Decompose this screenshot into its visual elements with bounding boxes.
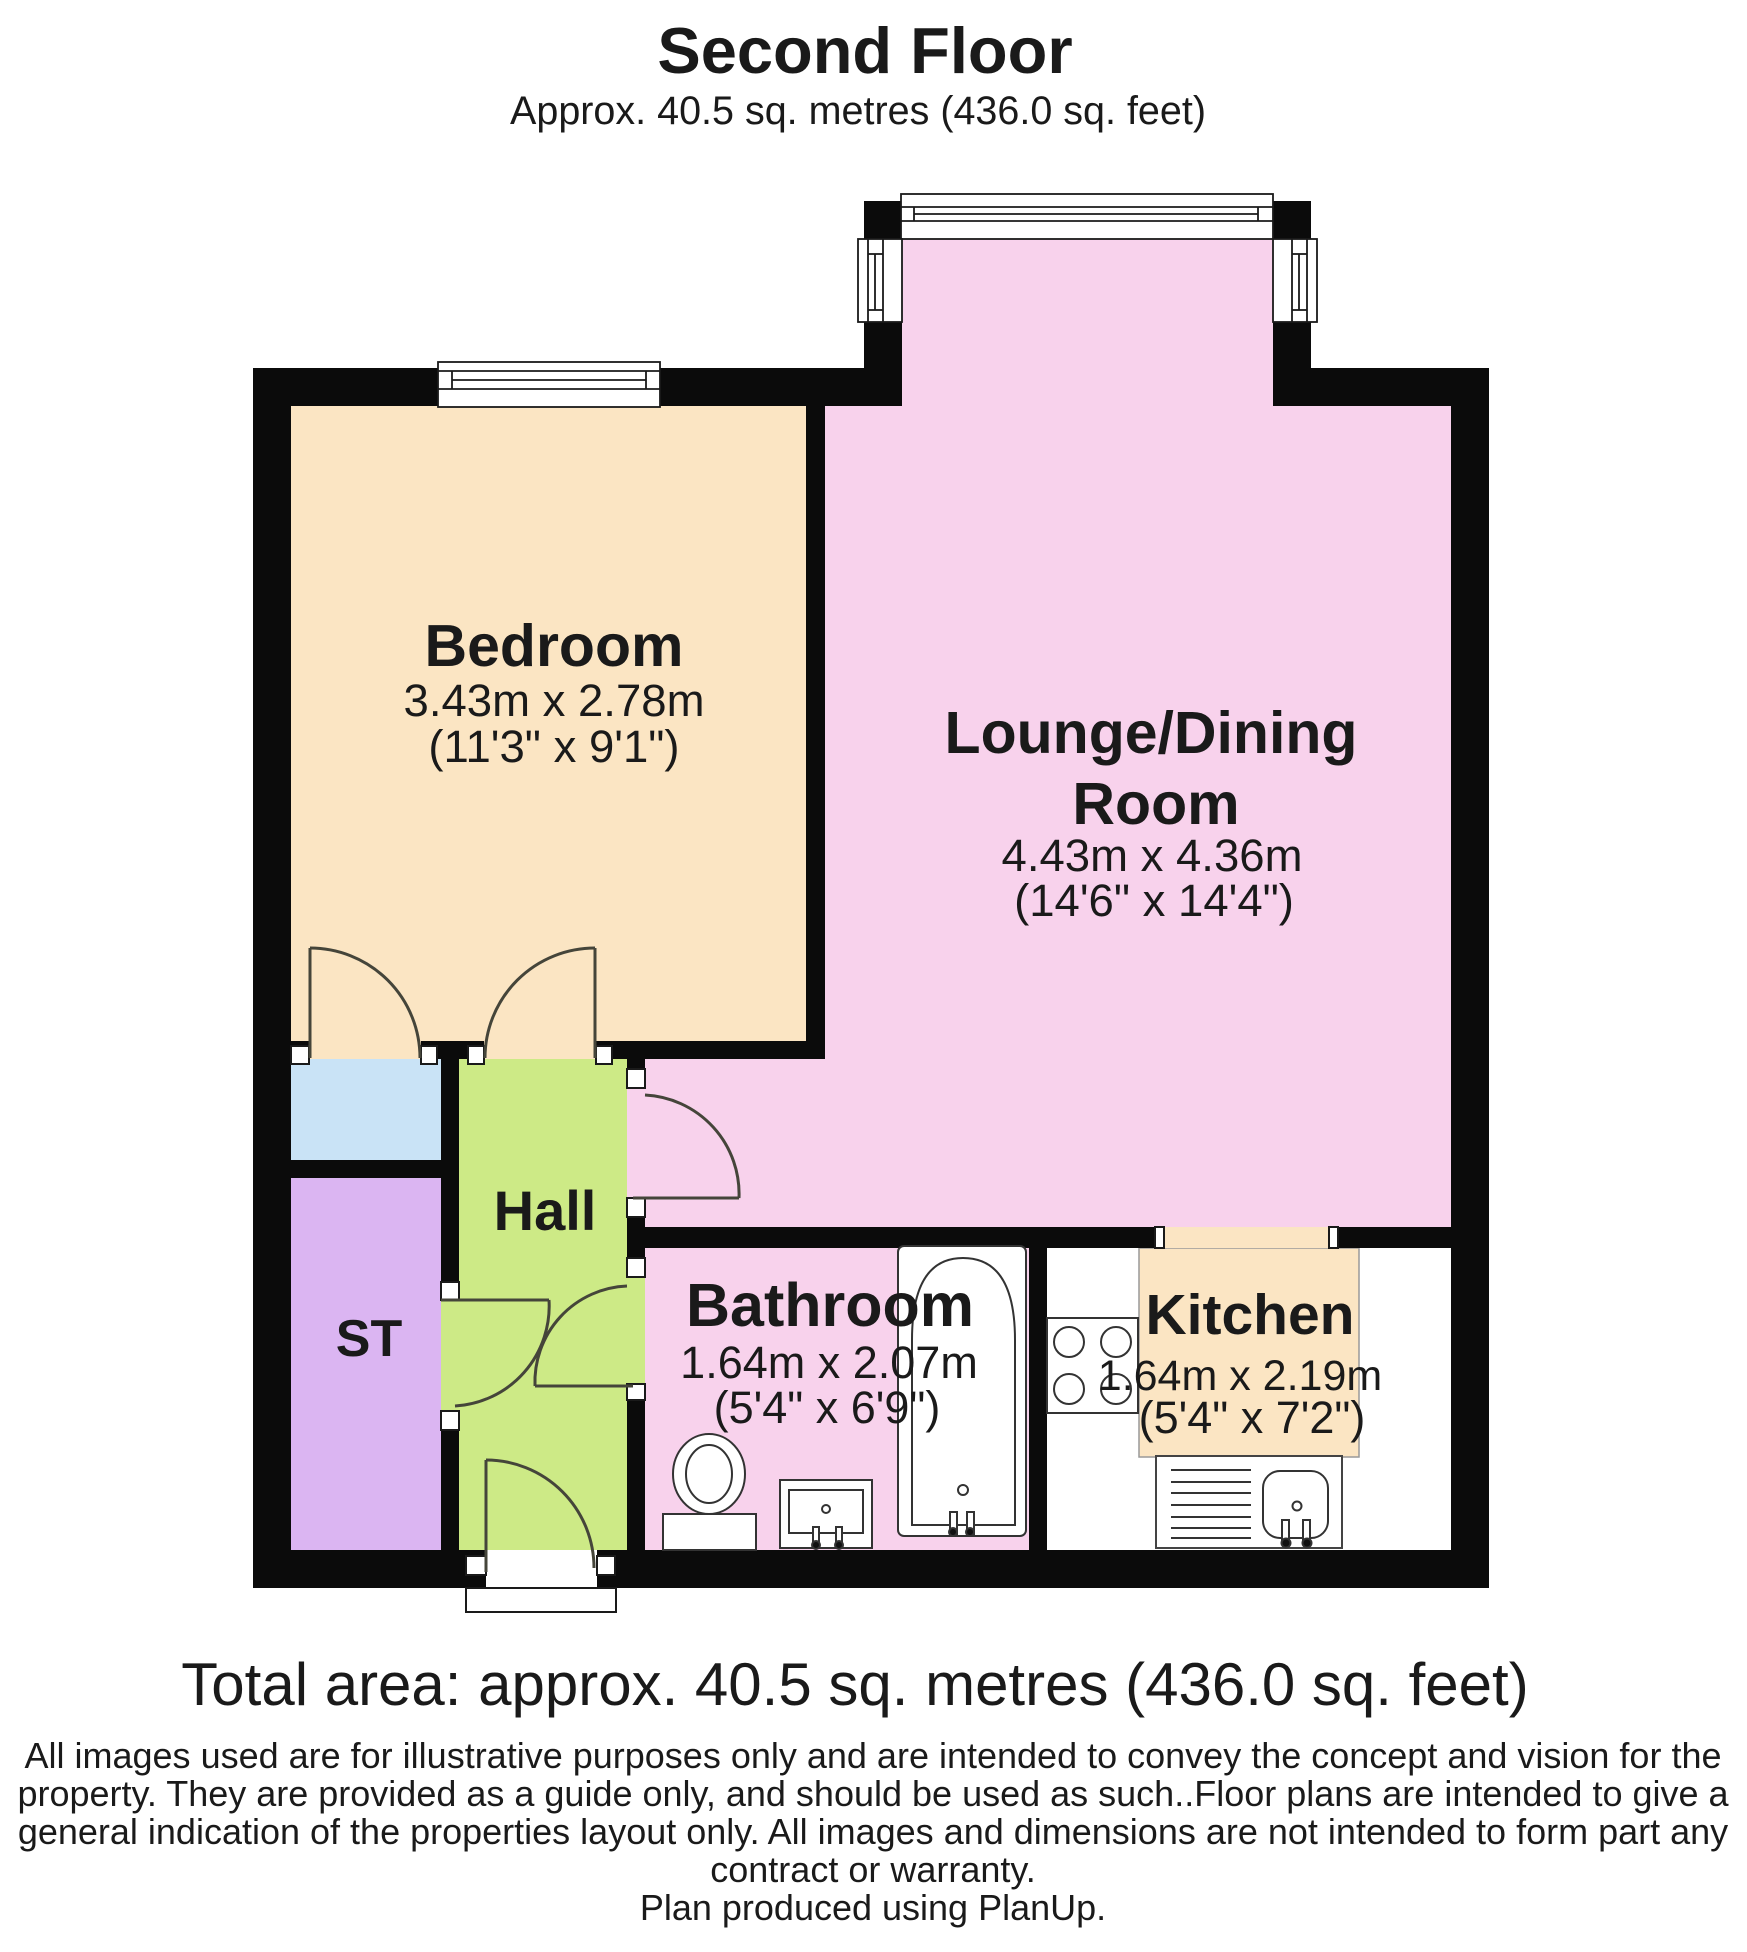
svg-text:3.43m x 2.78m: 3.43m x 2.78m [404, 675, 705, 726]
svg-text:Room: Room [1072, 771, 1239, 837]
svg-text:(14'6" x 14'4"): (14'6" x 14'4") [1014, 875, 1294, 926]
svg-text:Plan produced using PlanUp.: Plan produced using PlanUp. [640, 1887, 1106, 1928]
svg-text:Approx. 40.5 sq. metres (436.0: Approx. 40.5 sq. metres (436.0 sq. feet) [510, 89, 1206, 133]
svg-text:1.64m x 2.07m: 1.64m x 2.07m [680, 1337, 978, 1388]
svg-text:Lounge/Dining: Lounge/Dining [945, 700, 1358, 766]
svg-text:ST: ST [336, 1310, 403, 1368]
svg-text:4.43m x 4.36m: 4.43m x 4.36m [1002, 830, 1303, 881]
svg-text:general indication of the prop: general indication of the properties lay… [18, 1811, 1728, 1852]
svg-text:contract or warranty.: contract or warranty. [710, 1849, 1035, 1890]
svg-text:All images used are for illust: All images used are for illustrative pur… [25, 1735, 1722, 1776]
svg-text:(5'4" x 7'2"): (5'4" x 7'2") [1139, 1392, 1366, 1443]
svg-text:(5'4" x 6'9"): (5'4" x 6'9") [714, 1382, 941, 1433]
svg-text:Hall: Hall [494, 1179, 597, 1242]
svg-text:Bathroom: Bathroom [686, 1271, 974, 1339]
svg-text:property. They are provided as: property. They are provided as a guide o… [17, 1773, 1729, 1814]
svg-text:(11'3" x 9'1"): (11'3" x 9'1") [428, 721, 679, 772]
svg-text:Kitchen: Kitchen [1145, 1283, 1354, 1347]
svg-text:Bedroom: Bedroom [425, 613, 684, 679]
svg-text:Total area: approx. 40.5 sq. m: Total area: approx. 40.5 sq. metres (436… [181, 1651, 1528, 1718]
svg-text:Second Floor: Second Floor [657, 14, 1072, 87]
